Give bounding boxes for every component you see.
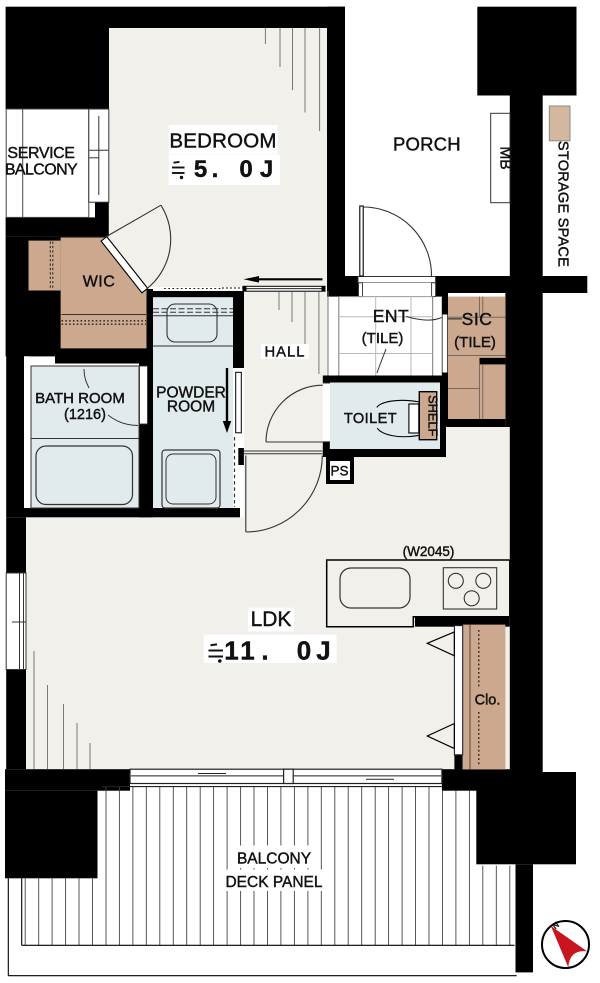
svg-text:J: J [260,156,273,183]
svg-text:(TILE): (TILE) [454,334,496,351]
svg-text:SHELF: SHELF [425,395,440,436]
svg-text:BATH ROOM: BATH ROOM [35,390,125,407]
svg-text:ENT: ENT [373,306,410,326]
svg-text:.: . [261,636,268,666]
svg-text:5: 5 [194,156,207,183]
svg-text:HALL: HALL [264,345,305,361]
svg-text:BALCONY: BALCONY [237,851,311,868]
svg-text:(W2045): (W2045) [403,544,455,559]
svg-text:Clo.: Clo. [475,693,501,709]
svg-text:WIC: WIC [83,274,116,291]
svg-text:DECK PANEL: DECK PANEL [225,874,322,891]
svg-text:0: 0 [239,156,252,183]
svg-text:STORAGE SPACE: STORAGE SPACE [555,141,571,267]
svg-text:1: 1 [240,636,254,666]
svg-text:0: 0 [297,636,311,666]
svg-text:PS: PS [330,464,348,479]
svg-text:BALCONY: BALCONY [5,162,78,179]
svg-text:PORCH: PORCH [393,134,461,155]
svg-text:TOILET: TOILET [344,411,397,427]
svg-text:(TILE): (TILE) [362,330,404,347]
svg-text:.: . [212,156,219,183]
svg-text:(1216): (1216) [64,407,106,423]
svg-text:SIC: SIC [462,309,493,329]
svg-text:ROOM: ROOM [167,399,215,416]
svg-text:LDK: LDK [251,608,292,631]
svg-text:BEDROOM: BEDROOM [169,130,276,153]
svg-text:MB: MB [496,146,513,169]
svg-text:SERVICE: SERVICE [7,145,74,162]
svg-text:J: J [316,636,330,666]
svg-text:1: 1 [224,636,238,666]
